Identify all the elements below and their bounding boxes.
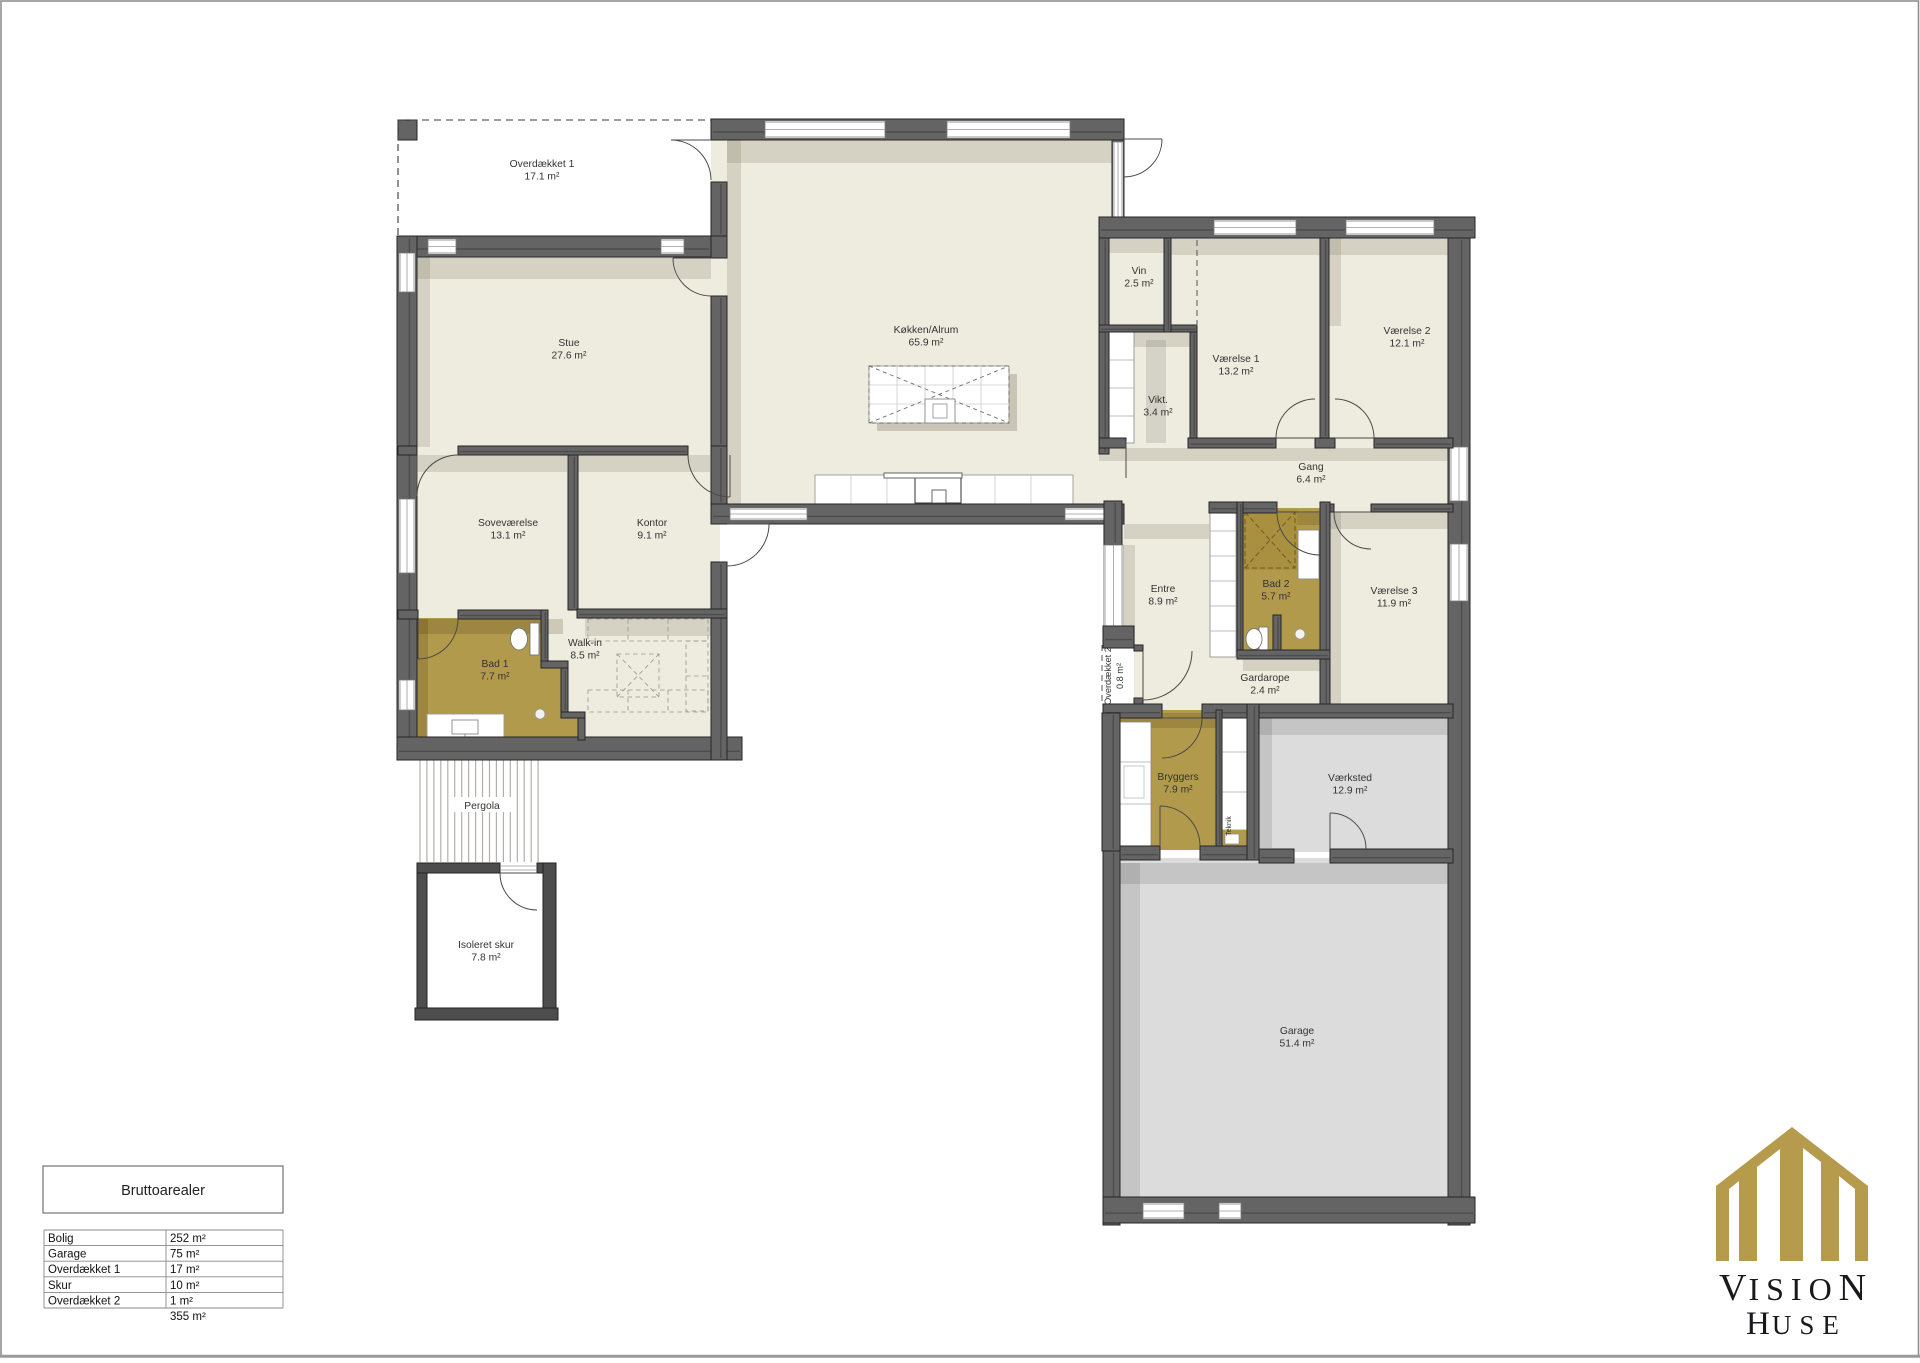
svg-text:Entre: Entre [1151,584,1176,595]
svg-text:13.1 m²: 13.1 m² [491,531,526,542]
svg-text:Vin: Vin [1132,266,1147,277]
svg-text:8.9 m²: 8.9 m² [1148,597,1178,608]
svg-text:355 m²: 355 m² [170,1311,206,1323]
svg-text:VISION: VISION [1719,1267,1866,1309]
svg-text:Bryggers: Bryggers [1157,772,1198,783]
svg-text:7.9 m²: 7.9 m² [1163,785,1193,796]
svg-text:65.9 m²: 65.9 m² [909,338,944,349]
svg-text:252 m²: 252 m² [170,1233,206,1245]
svg-text:51.4 m²: 51.4 m² [1280,1039,1315,1050]
svg-text:Stue: Stue [558,338,579,349]
svg-text:Bad 2: Bad 2 [1263,579,1290,590]
svg-text:13.2 m²: 13.2 m² [1219,367,1254,378]
svg-text:Værelse 1: Værelse 1 [1213,354,1260,365]
svg-text:17.1 m²: 17.1 m² [525,172,560,183]
svg-text:HUSE: HUSE [1746,1306,1847,1342]
svg-text:Værksted: Værksted [1328,773,1372,784]
svg-text:7.7 m²: 7.7 m² [480,672,510,683]
svg-text:Garage: Garage [48,1249,86,1261]
svg-text:Vikt.: Vikt. [1148,395,1168,406]
svg-text:Walk-in: Walk-in [568,638,602,649]
svg-text:1 m²: 1 m² [170,1295,193,1307]
svg-text:Bruttoarealer: Bruttoarealer [121,1183,205,1199]
svg-text:Pergola: Pergola [464,801,500,812]
svg-text:Gardarope: Gardarope [1240,673,1290,684]
svg-text:Overdækket 1: Overdækket 1 [510,159,575,170]
svg-text:6.4 m²: 6.4 m² [1296,475,1326,486]
svg-text:2.5 m²: 2.5 m² [1124,279,1154,290]
svg-text:5.7 m²: 5.7 m² [1261,592,1291,603]
svg-text:Garage: Garage [1280,1026,1315,1037]
svg-text:Bad 1: Bad 1 [482,659,509,670]
svg-text:Overdækket 2: Overdækket 2 [1103,647,1113,705]
svg-text:7.8 m²: 7.8 m² [471,953,501,964]
svg-text:Soveværelse: Soveværelse [478,518,538,529]
svg-text:Teknik: Teknik [1226,816,1233,836]
svg-text:Skur: Skur [48,1280,72,1292]
svg-text:12.1 m²: 12.1 m² [1390,339,1425,350]
svg-text:12.9 m²: 12.9 m² [1333,786,1368,797]
svg-text:17 m²: 17 m² [170,1264,200,1276]
svg-text:27.6 m²: 27.6 m² [552,351,587,362]
svg-text:Bolig: Bolig [48,1233,74,1245]
svg-text:0.8 m²: 0.8 m² [1115,663,1125,689]
svg-text:Værelse 3: Værelse 3 [1371,586,1418,597]
svg-text:11.9 m²: 11.9 m² [1377,599,1412,610]
svg-text:Gang: Gang [1298,462,1323,473]
svg-text:75 m²: 75 m² [170,1249,200,1261]
svg-text:3.4 m²: 3.4 m² [1143,408,1173,419]
svg-text:Køkken/Alrum: Køkken/Alrum [894,325,959,336]
svg-text:Isoleret skur: Isoleret skur [458,940,515,951]
svg-text:Kontor: Kontor [637,518,668,529]
svg-text:2.4 m²: 2.4 m² [1250,686,1280,697]
svg-text:Værelse 2: Værelse 2 [1384,326,1431,337]
svg-text:Overdækket 1: Overdækket 1 [48,1264,120,1276]
svg-text:10 m²: 10 m² [170,1280,200,1292]
svg-text:8.5 m²: 8.5 m² [570,651,600,662]
svg-text:Overdækket 2: Overdækket 2 [48,1295,120,1307]
svg-text:9.1 m²: 9.1 m² [637,531,667,542]
